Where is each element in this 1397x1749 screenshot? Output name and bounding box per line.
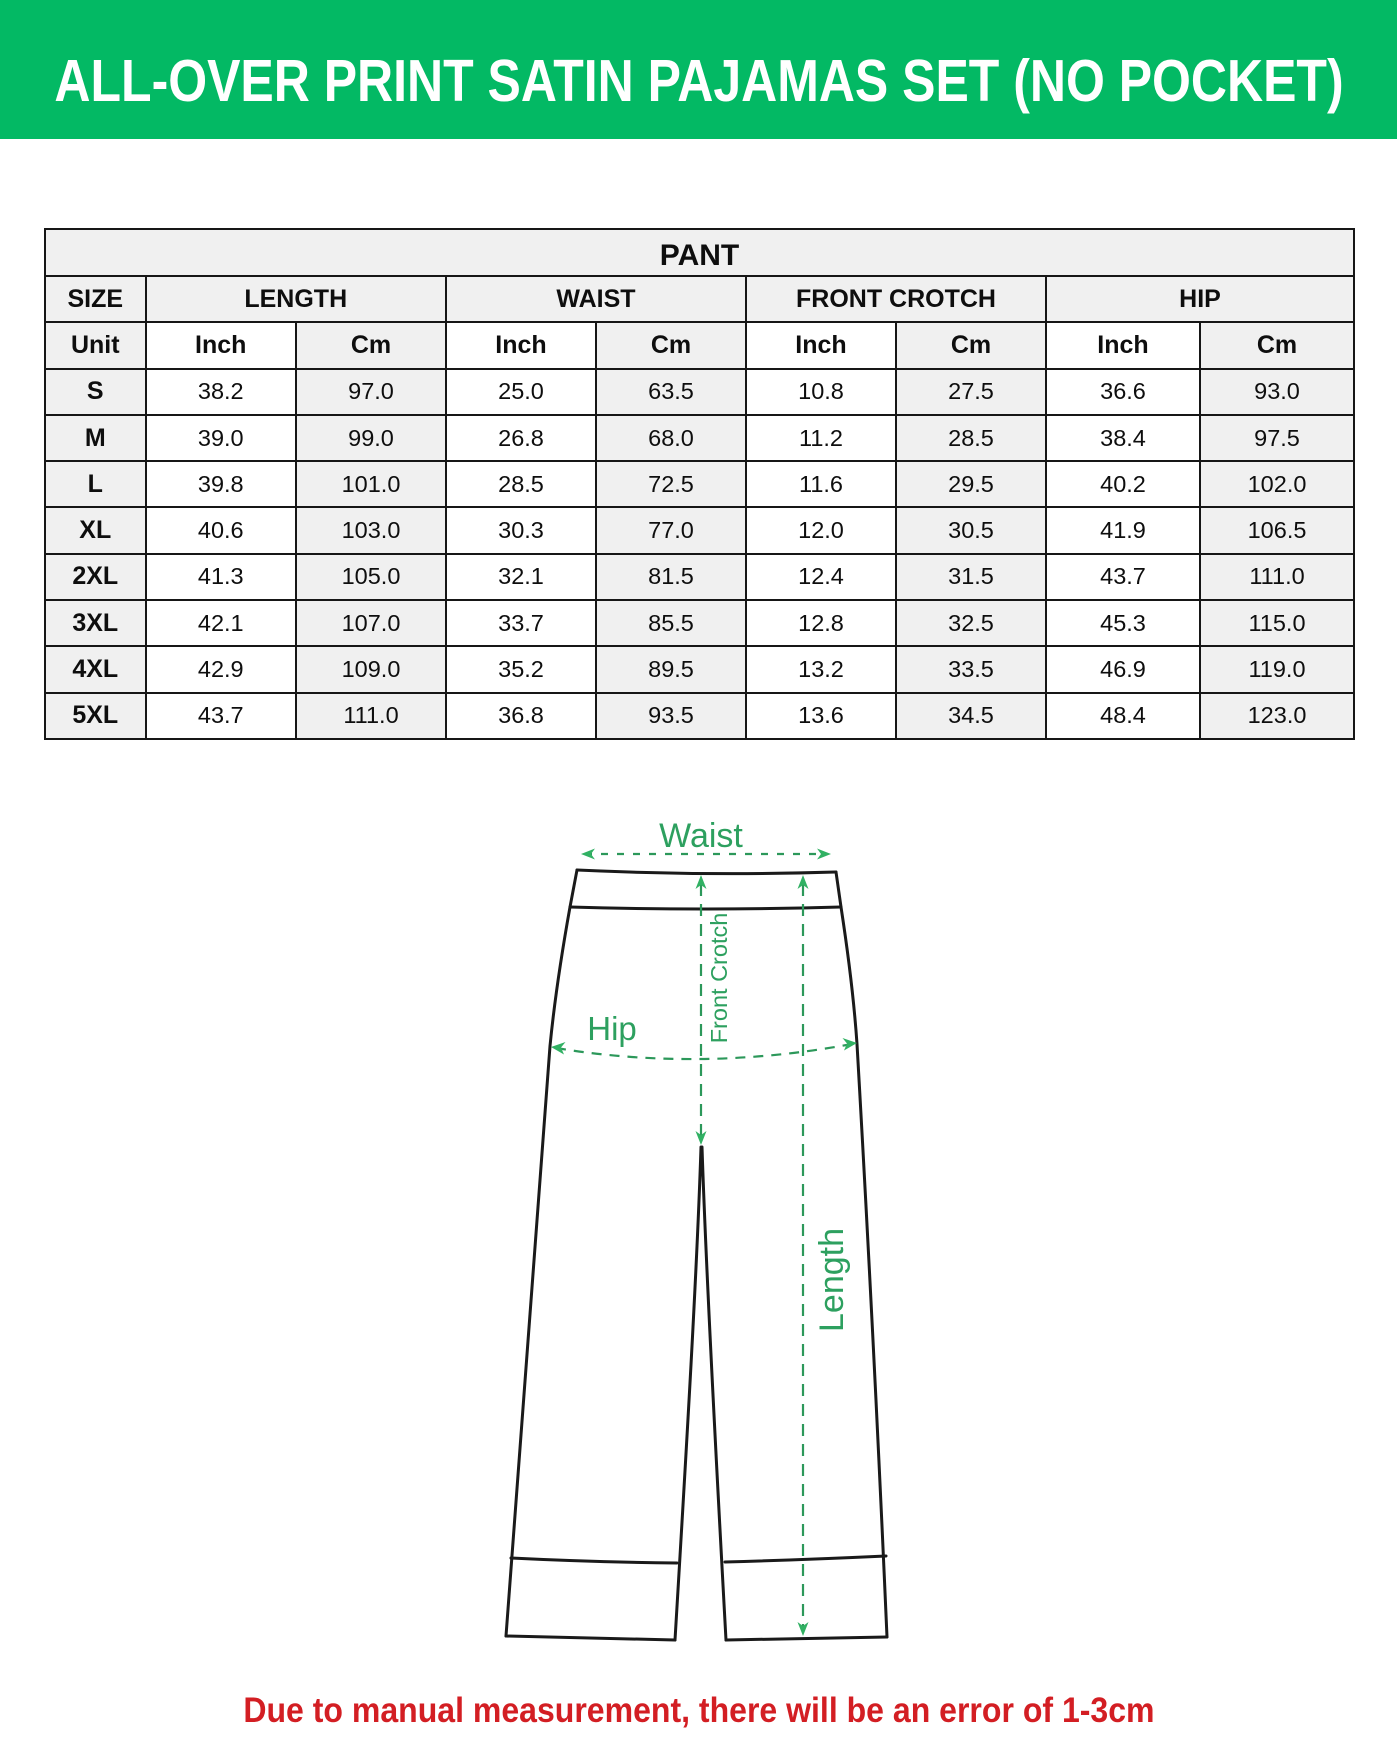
- svg-text:Length: Length: [813, 1228, 851, 1332]
- svg-text:Front Crotch: Front Crotch: [706, 913, 732, 1044]
- svg-text:Waist: Waist: [659, 817, 743, 855]
- svg-text:Hip: Hip: [587, 1010, 637, 1047]
